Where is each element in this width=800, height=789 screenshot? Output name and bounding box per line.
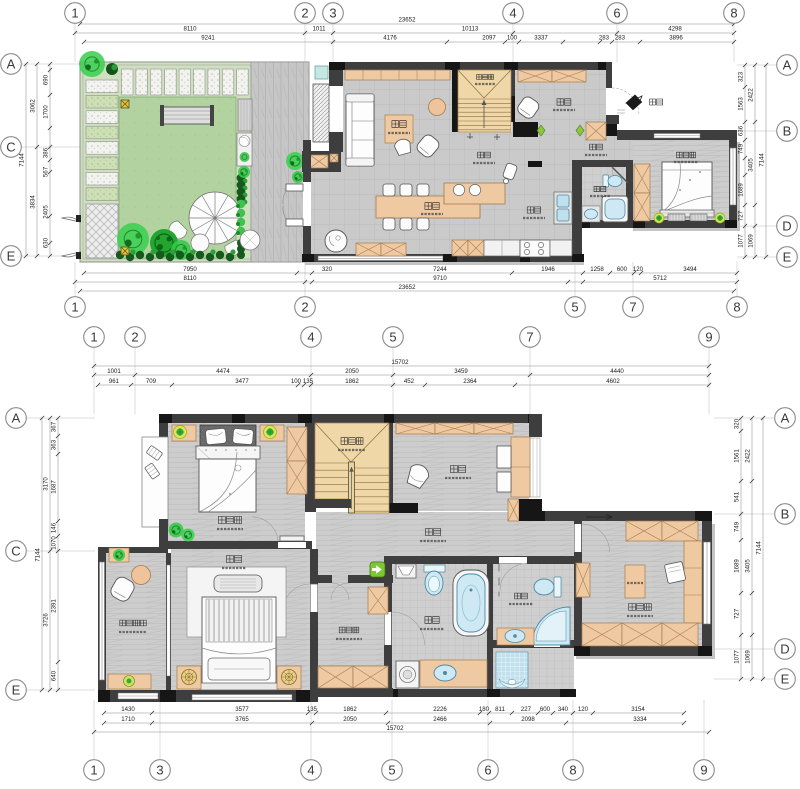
svg-text:23652: 23652	[399, 284, 417, 291]
svg-text:363: 363	[51, 439, 58, 450]
svg-text:3459: 3459	[454, 368, 468, 375]
svg-text:1: 1	[90, 329, 97, 344]
svg-text:135: 135	[307, 706, 318, 713]
svg-text:8110: 8110	[183, 26, 197, 33]
svg-text:452: 452	[404, 378, 415, 385]
svg-text:1001: 1001	[107, 368, 121, 375]
svg-text:180: 180	[479, 706, 490, 713]
svg-text:367: 367	[51, 421, 58, 432]
svg-text:1689: 1689	[734, 559, 741, 573]
svg-text:E: E	[781, 671, 790, 686]
svg-text:4298: 4298	[668, 26, 682, 33]
svg-text:709: 709	[146, 378, 157, 385]
svg-text:7: 7	[526, 329, 533, 344]
svg-text:2: 2	[301, 299, 308, 314]
svg-text:1070: 1070	[51, 536, 58, 550]
svg-text:4602: 4602	[606, 378, 620, 385]
svg-text:1946: 1946	[541, 266, 555, 273]
svg-text:5: 5	[389, 329, 396, 344]
svg-text:3: 3	[156, 762, 163, 777]
svg-text:3726: 3726	[43, 613, 50, 627]
svg-text:2364: 2364	[463, 378, 477, 385]
svg-text:135: 135	[303, 378, 314, 385]
svg-text:1077: 1077	[738, 234, 745, 248]
svg-text:4: 4	[307, 762, 314, 777]
svg-text:8110: 8110	[183, 275, 197, 282]
svg-text:961: 961	[109, 378, 120, 385]
svg-text:A: A	[783, 57, 792, 72]
svg-text:A: A	[7, 56, 16, 71]
svg-text:9710: 9710	[433, 275, 447, 282]
svg-text:3834: 3834	[30, 195, 37, 209]
svg-text:630: 630	[43, 237, 50, 248]
svg-text:120: 120	[633, 266, 644, 273]
svg-text:1710: 1710	[121, 716, 135, 723]
svg-text:283: 283	[599, 35, 610, 42]
svg-text:C: C	[6, 139, 15, 154]
svg-text:3494: 3494	[683, 266, 697, 273]
svg-text:1069: 1069	[745, 650, 752, 664]
svg-text:E: E	[12, 682, 21, 697]
svg-text:6: 6	[613, 5, 620, 20]
svg-text:1258: 1258	[590, 266, 604, 273]
svg-text:2050: 2050	[345, 368, 359, 375]
svg-text:283: 283	[615, 35, 626, 42]
svg-text:3337: 3337	[534, 35, 548, 42]
svg-text:9: 9	[705, 329, 712, 344]
svg-text:4176: 4176	[383, 35, 397, 42]
svg-text:15702: 15702	[387, 725, 405, 732]
svg-text:3577: 3577	[235, 706, 249, 713]
svg-text:2: 2	[131, 329, 138, 344]
svg-text:3334: 3334	[633, 716, 647, 723]
svg-text:1862: 1862	[343, 706, 357, 713]
svg-text:C: C	[11, 543, 20, 558]
svg-text:15702: 15702	[392, 359, 410, 366]
svg-text:3405: 3405	[745, 559, 752, 573]
svg-text:567: 567	[43, 166, 50, 177]
svg-text:600: 600	[617, 266, 628, 273]
svg-text:A: A	[781, 410, 790, 425]
svg-text:B: B	[783, 123, 792, 138]
svg-text:1561: 1561	[734, 449, 741, 463]
svg-text:10113: 10113	[462, 26, 479, 33]
svg-text:3062: 3062	[30, 99, 37, 113]
svg-text:7: 7	[629, 299, 636, 314]
svg-text:2391: 2391	[51, 599, 58, 613]
svg-text:1700: 1700	[43, 105, 50, 119]
svg-text:690: 690	[43, 74, 50, 85]
svg-text:4: 4	[509, 5, 516, 20]
svg-text:4: 4	[307, 329, 314, 344]
svg-text:3477: 3477	[235, 378, 249, 385]
svg-text:100: 100	[507, 35, 518, 42]
svg-text:749: 749	[738, 143, 745, 154]
svg-text:227: 227	[521, 706, 532, 713]
svg-text:3: 3	[329, 5, 336, 20]
svg-text:9241: 9241	[201, 35, 215, 42]
svg-text:3170: 3170	[43, 477, 50, 491]
svg-text:3896: 3896	[669, 35, 683, 42]
svg-text:340: 340	[558, 706, 569, 713]
svg-text:7144: 7144	[35, 548, 42, 562]
svg-text:2226: 2226	[433, 706, 447, 713]
svg-text:8: 8	[730, 5, 737, 20]
svg-text:1011: 1011	[312, 26, 326, 33]
svg-text:3405: 3405	[748, 158, 755, 172]
svg-text:7244: 7244	[433, 266, 447, 273]
svg-text:1069: 1069	[748, 234, 755, 248]
svg-text:D: D	[782, 218, 791, 233]
svg-text:5712: 5712	[653, 275, 667, 282]
svg-text:1: 1	[71, 5, 78, 20]
svg-text:D: D	[780, 641, 789, 656]
svg-text:23652: 23652	[399, 17, 417, 24]
svg-text:3765: 3765	[235, 716, 249, 723]
svg-text:1077: 1077	[734, 650, 741, 664]
svg-text:1687: 1687	[51, 480, 58, 494]
svg-text:6: 6	[484, 762, 491, 777]
svg-text:A: A	[12, 410, 21, 425]
svg-text:2405: 2405	[43, 205, 50, 219]
svg-text:1563: 1563	[738, 97, 745, 111]
svg-text:4474: 4474	[216, 368, 230, 375]
svg-text:E: E	[7, 248, 16, 263]
svg-text:640: 640	[51, 670, 58, 681]
svg-text:320: 320	[734, 418, 741, 429]
svg-text:2422: 2422	[745, 449, 752, 463]
svg-text:1: 1	[71, 299, 78, 314]
svg-text:323: 323	[738, 71, 745, 82]
svg-text:4440: 4440	[610, 368, 624, 375]
svg-text:749: 749	[734, 521, 741, 532]
svg-text:727: 727	[738, 210, 745, 221]
svg-text:5: 5	[388, 762, 395, 777]
svg-text:811: 811	[495, 706, 505, 713]
svg-text:320: 320	[322, 266, 333, 273]
svg-text:1: 1	[90, 762, 97, 777]
svg-text:5: 5	[571, 299, 578, 314]
svg-text:7950: 7950	[183, 266, 197, 273]
svg-text:1862: 1862	[345, 378, 359, 385]
svg-text:2097: 2097	[482, 35, 496, 42]
svg-text:146: 146	[51, 522, 58, 533]
svg-text:120: 120	[578, 706, 589, 713]
svg-text:2050: 2050	[343, 716, 357, 723]
svg-text:727: 727	[734, 608, 741, 619]
svg-text:7144: 7144	[759, 153, 766, 167]
svg-text:100: 100	[291, 378, 302, 385]
svg-text:2: 2	[301, 5, 308, 20]
svg-text:7144: 7144	[756, 541, 763, 555]
svg-text:2466: 2466	[433, 716, 447, 723]
svg-text:541: 541	[734, 491, 741, 502]
svg-text:8: 8	[569, 762, 576, 777]
svg-text:600: 600	[540, 706, 551, 713]
svg-text:B: B	[781, 506, 790, 521]
svg-text:636: 636	[738, 125, 745, 136]
svg-text:1689: 1689	[738, 183, 745, 197]
svg-text:1430: 1430	[121, 706, 135, 713]
svg-text:386: 386	[43, 147, 50, 158]
svg-text:2098: 2098	[521, 716, 535, 723]
svg-text:2422: 2422	[748, 88, 755, 102]
svg-text:E: E	[783, 249, 792, 264]
svg-text:8: 8	[733, 299, 740, 314]
svg-text:9: 9	[700, 762, 707, 777]
svg-text:3154: 3154	[631, 706, 645, 713]
svg-text:7144: 7144	[19, 153, 26, 167]
